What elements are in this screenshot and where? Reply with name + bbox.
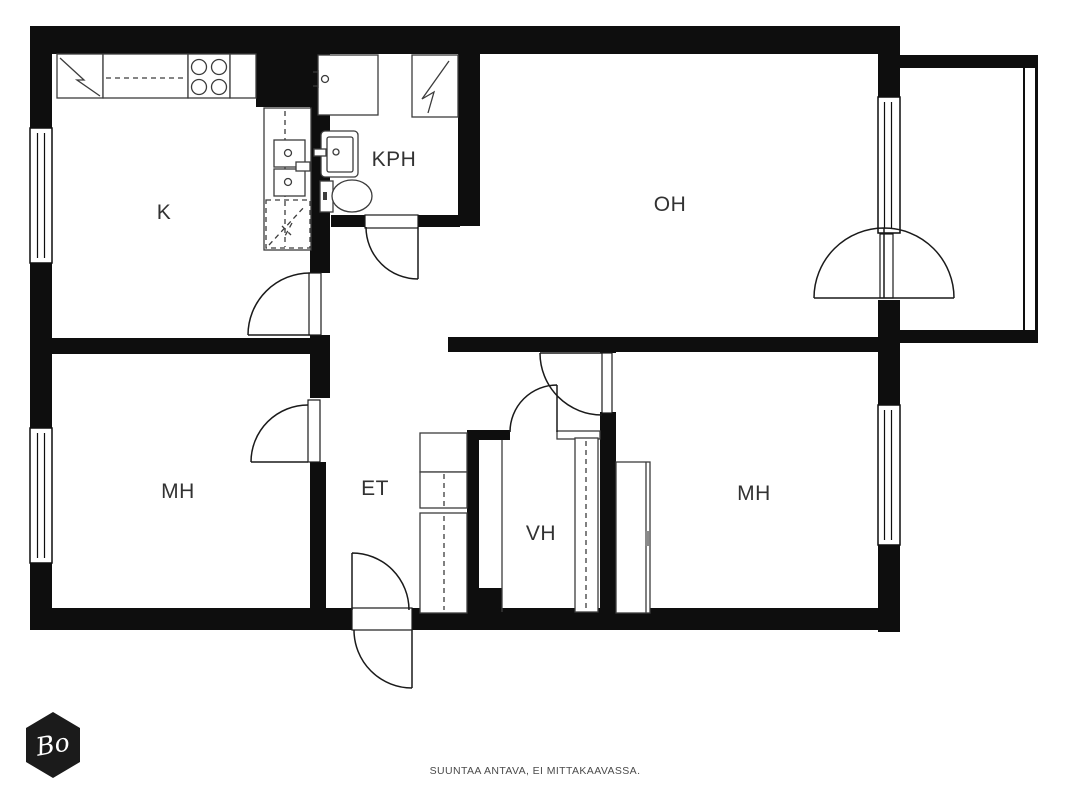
wardrobe-handle (645, 531, 649, 546)
wall-bottom-a (30, 608, 352, 630)
balcony-railing-outer (1035, 68, 1038, 330)
door-leaf (309, 273, 321, 335)
balcony-wall-top (898, 55, 1038, 68)
kitchen-sink-unit (264, 108, 311, 250)
wall-corridor-south (448, 337, 878, 352)
wall-mhl-et (310, 462, 326, 608)
door-swing-arc-inner (352, 553, 409, 610)
door-swing-arc (366, 227, 418, 279)
bathroom-door (365, 215, 418, 279)
room-label-kitchen: K (157, 201, 172, 224)
wall-kph-oh (458, 54, 480, 226)
bedroom-left-door (251, 400, 320, 462)
window-frame (878, 97, 900, 233)
wall-right-a (878, 26, 900, 97)
sink-faucet (314, 149, 326, 156)
balcony-railing-inner (1023, 68, 1025, 330)
bedroom-right-door (540, 353, 612, 415)
window-living-room (878, 97, 900, 233)
door-leaf (602, 353, 612, 413)
wall-vh-step (467, 588, 502, 615)
door-leaf (308, 400, 320, 462)
window-frame (30, 128, 52, 263)
closet-door (510, 385, 557, 432)
entry-door (352, 553, 412, 688)
logo: Bo (26, 712, 80, 778)
toilet-flush (323, 192, 327, 200)
door-swing-arc (248, 273, 310, 335)
sink-bowl-2 (274, 169, 305, 196)
water-heater-icon (412, 55, 458, 117)
kitchen-door (248, 273, 321, 335)
room-label-bathroom: KPH (372, 148, 417, 171)
logo-text: Bo (33, 727, 72, 762)
balcony-door (814, 228, 954, 298)
bedroom-right-wardrobe (616, 462, 650, 613)
wall-k-mhl (40, 338, 330, 354)
room-label-bedroom-right: MH (737, 482, 771, 505)
wardrobe-body (616, 462, 650, 613)
window-frame (30, 428, 52, 563)
wall-right-c (878, 545, 900, 632)
room-label-entry: ET (361, 477, 389, 500)
stove-icon (188, 54, 230, 98)
toilet-icon (320, 180, 372, 212)
door-swing-arc (540, 353, 602, 415)
window-bedroom-right (878, 405, 900, 545)
room-label-living-room: OH (654, 193, 687, 216)
room-label-bedroom-left: MH (161, 480, 195, 503)
room-label-closet: VH (526, 522, 556, 545)
wall-vh-mhr-a (600, 337, 616, 353)
wall-et-vh (467, 438, 479, 592)
toilet-bowl (332, 180, 372, 212)
door-swing-arc (814, 228, 954, 298)
balcony-walls (898, 55, 1038, 343)
entry-wardrobe-1 (420, 433, 467, 472)
washing-machine-icon (318, 55, 378, 115)
door-swing-arc (510, 385, 557, 432)
floor-plan-page: K KPH OH MH ET VH MH Bo SUUNTAA ANTAVA, … (0, 0, 1067, 800)
kitchen-counter (103, 54, 188, 98)
door-leaf (352, 608, 412, 630)
floor-plan: K KPH OH MH ET VH MH Bo SUUNTAA ANTAVA, … (0, 0, 1067, 800)
door-swing-arc (251, 405, 308, 462)
wall-top (30, 26, 900, 54)
bathroom-sink-icon (314, 131, 358, 177)
wall-vh-top (467, 430, 510, 440)
wall-kph-bottom-b (418, 215, 460, 227)
window-frame (878, 405, 900, 545)
door-leaf (365, 215, 418, 228)
door-leaf (880, 234, 893, 298)
disclaimer-caption: SUUNTAA ANTAVA, EI MITTAKAAVASSA. (430, 765, 641, 777)
window-bedroom-left (30, 428, 52, 563)
wall-vh-mhr-b (600, 412, 616, 615)
faucet-icon (296, 162, 310, 171)
door-swing-arc-outer (354, 630, 412, 688)
wall-right-b (878, 300, 900, 405)
window-kitchen (30, 128, 52, 263)
wall-kph-bottom-a (331, 215, 365, 227)
bathroom-fixtures (313, 55, 458, 212)
balcony-wall-bottom (898, 330, 1038, 343)
kitchen-counter-end (230, 54, 256, 98)
wall-left-a (30, 26, 52, 128)
